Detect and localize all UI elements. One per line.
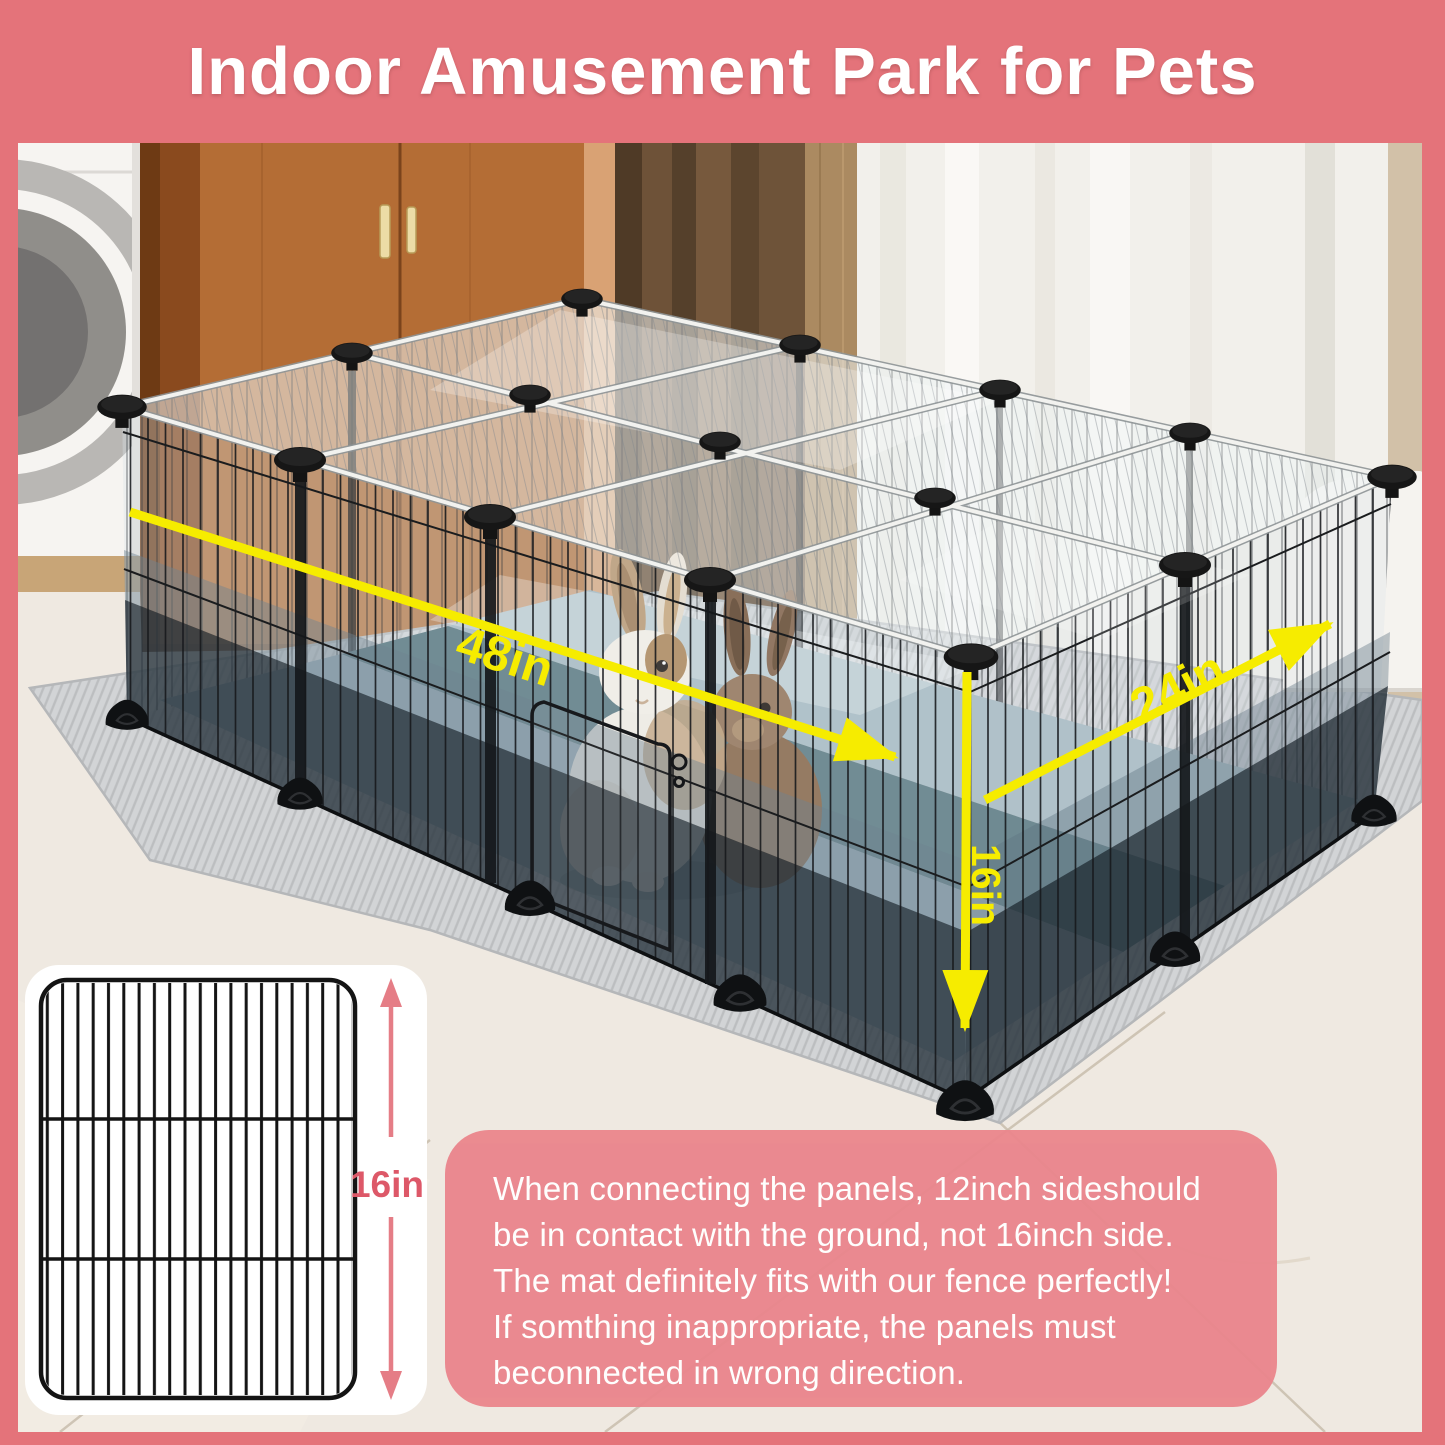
panel-joint-bar <box>295 480 306 797</box>
cabinet-handle-left <box>380 205 390 258</box>
note-line: be in contact with the ground, not 16inc… <box>493 1212 1231 1258</box>
room-photo: 48in 24in 16in <box>18 143 1422 1432</box>
product-image-frame: Indoor Amusement Park for Pets <box>0 0 1445 1445</box>
note-box: When connecting the panels, 12inch sides… <box>445 1130 1277 1407</box>
note-line: When connecting the panels, 12inch sides… <box>493 1166 1231 1212</box>
note-line: beconnected in wrong direction. <box>493 1350 1231 1396</box>
inset-height-label: 16in <box>350 1164 424 1205</box>
note-line: The mat definitely fits with our fence p… <box>493 1258 1231 1304</box>
panel-joint-bar <box>485 535 496 883</box>
panel-diagram: 16in <box>25 965 427 1415</box>
header-banner: Indoor Amusement Park for Pets <box>0 0 1445 143</box>
panel-joint-bar <box>1180 583 1190 946</box>
page-title: Indoor Amusement Park for Pets <box>188 33 1258 110</box>
panel-joint-bar <box>705 598 716 984</box>
panel-inset: 16in <box>25 965 427 1415</box>
cabinet-handle-right <box>407 207 416 253</box>
height-label: 16in <box>963 844 1009 926</box>
panel-wires <box>44 983 352 1395</box>
note-line: If somthing inappropriate, the panels mu… <box>493 1304 1231 1350</box>
